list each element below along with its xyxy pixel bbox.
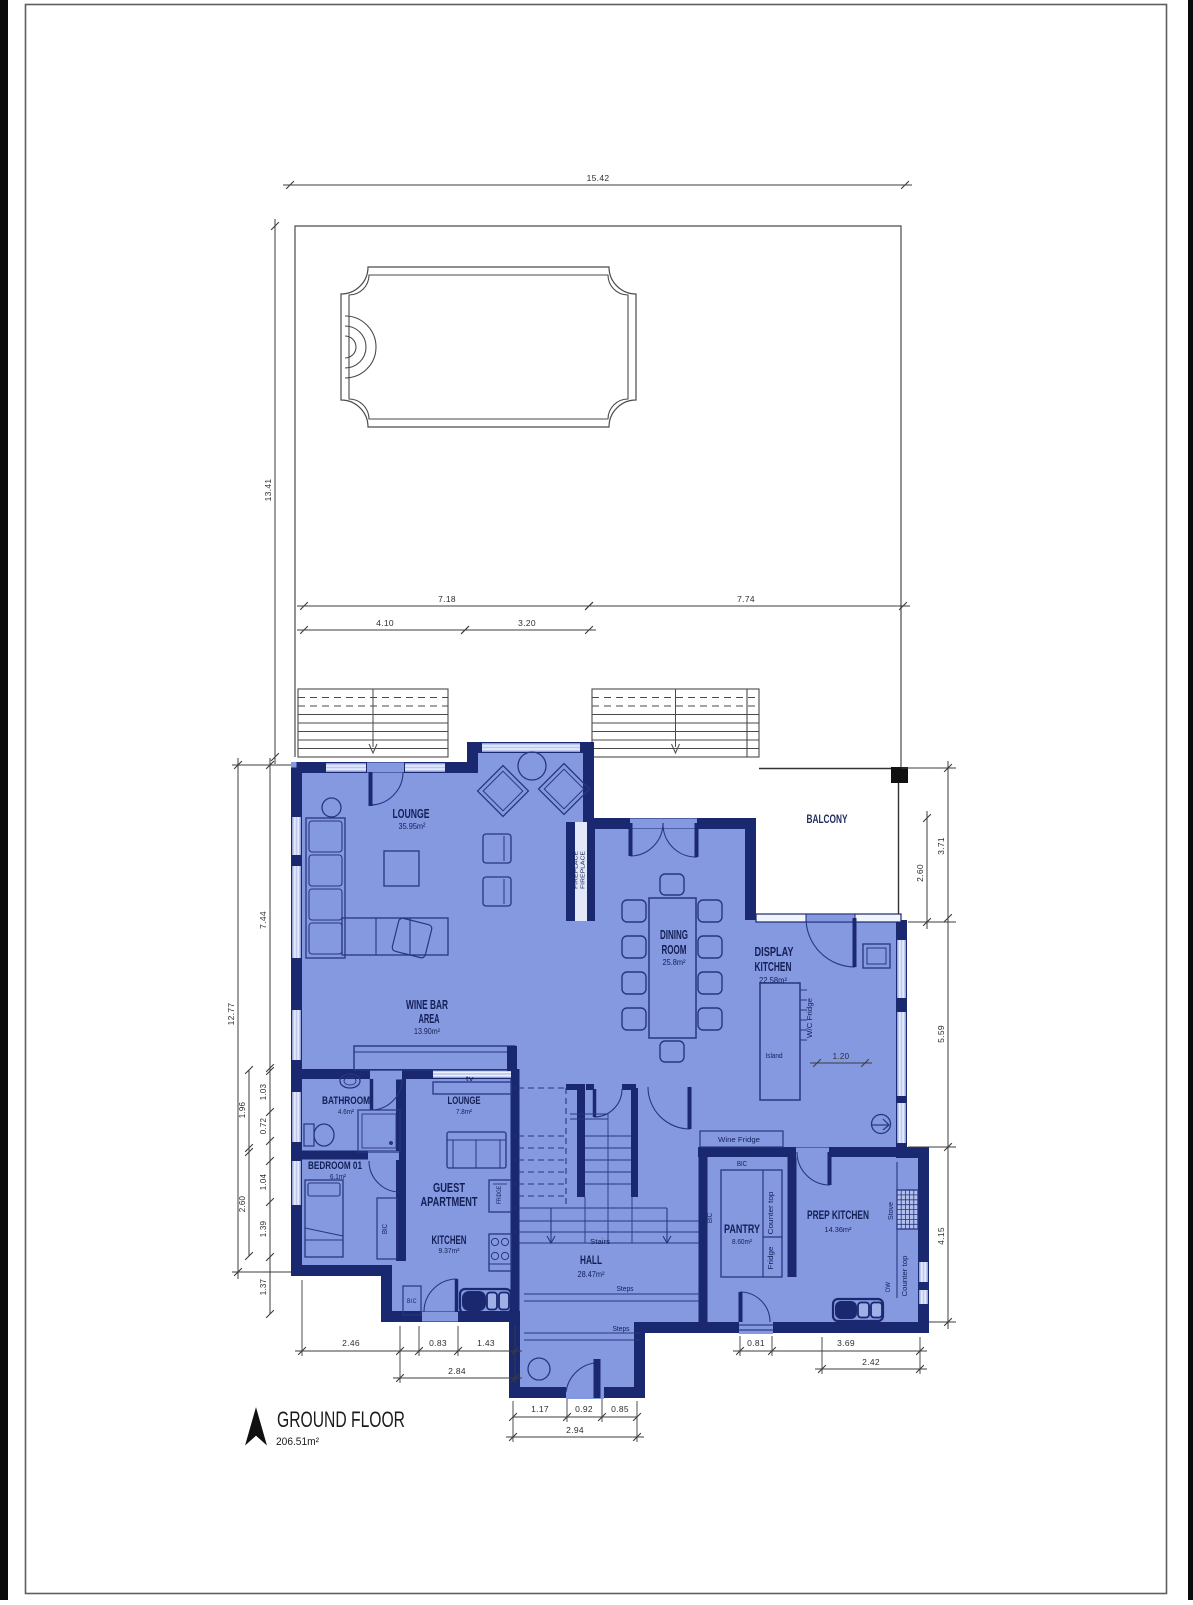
svg-text:3.71: 3.71 — [936, 837, 946, 855]
svg-text:2.42: 2.42 — [862, 1357, 880, 1367]
svg-text:Fridge: Fridge — [768, 1246, 775, 1269]
svg-text:APARTMENT: APARTMENT — [421, 1194, 478, 1209]
svg-text:2.46: 2.46 — [342, 1338, 360, 1348]
svg-text:0.81: 0.81 — [747, 1338, 765, 1348]
svg-text:DISPLAY: DISPLAY — [755, 944, 794, 959]
svg-text:7.18: 7.18 — [438, 594, 456, 604]
svg-text:PANTRY: PANTRY — [724, 1222, 760, 1236]
svg-text:2.60: 2.60 — [238, 1195, 247, 1212]
svg-text:BIC: BIC — [382, 1224, 389, 1234]
svg-text:LOUNGE: LOUNGE — [393, 806, 430, 821]
svg-text:DINING: DINING — [660, 927, 688, 942]
svg-text:FIREPLACE: FIREPLACE — [574, 851, 580, 889]
svg-text:2.84: 2.84 — [448, 1366, 466, 1376]
svg-text:7.74: 7.74 — [737, 594, 755, 604]
svg-text:25.8m²: 25.8m² — [663, 958, 686, 967]
svg-text:HALL: HALL — [580, 1253, 602, 1267]
svg-text:7.8m²: 7.8m² — [456, 1107, 472, 1116]
svg-text:4.15: 4.15 — [936, 1227, 946, 1245]
svg-text:0.83: 0.83 — [429, 1338, 447, 1348]
svg-text:1.17: 1.17 — [531, 1404, 549, 1414]
svg-text:0.72: 0.72 — [259, 1117, 268, 1134]
svg-text:206.51m²: 206.51m² — [276, 1436, 319, 1448]
svg-text:Wine Fridge: Wine Fridge — [718, 1135, 760, 1144]
svg-text:5.59: 5.59 — [936, 1025, 946, 1043]
svg-text:Island: Island — [766, 1051, 783, 1060]
svg-text:15.42: 15.42 — [587, 173, 610, 183]
svg-text:W/C Fridge: W/C Fridge — [807, 998, 814, 1038]
svg-text:Counter top: Counter top — [902, 1255, 909, 1296]
svg-text:13.90m²: 13.90m² — [414, 1027, 440, 1036]
svg-text:WINE BAR: WINE BAR — [406, 997, 448, 1012]
svg-text:4.6m²: 4.6m² — [338, 1107, 354, 1116]
svg-text:0.85: 0.85 — [611, 1404, 629, 1414]
svg-text:KITCHEN: KITCHEN — [755, 959, 792, 974]
svg-text:4.10: 4.10 — [376, 618, 394, 628]
svg-text:ROOM: ROOM — [662, 942, 687, 957]
svg-text:3.20: 3.20 — [518, 618, 536, 628]
svg-text:1.96: 1.96 — [238, 1101, 247, 1118]
svg-text:1.39: 1.39 — [259, 1220, 268, 1237]
svg-text:GUEST: GUEST — [433, 1180, 465, 1195]
svg-text:Stairs: Stairs — [590, 1237, 610, 1246]
svg-text:Steps: Steps — [617, 1284, 634, 1293]
svg-text:FRIDGE: FRIDGE — [496, 1186, 503, 1204]
svg-text:Steps: Steps — [613, 1324, 630, 1333]
svg-text:1.04: 1.04 — [259, 1173, 268, 1190]
svg-text:8.60m²: 8.60m² — [732, 1237, 752, 1246]
svg-text:KITCHEN: KITCHEN — [432, 1233, 467, 1247]
svg-text:BATHROOM: BATHROOM — [322, 1095, 370, 1107]
svg-text:BIC: BIC — [407, 1298, 417, 1305]
svg-text:28.47m²: 28.47m² — [578, 1270, 605, 1279]
svg-text:1.03: 1.03 — [259, 1083, 268, 1100]
svg-text:BALCONY: BALCONY — [807, 812, 848, 826]
svg-text:1.37: 1.37 — [259, 1278, 268, 1295]
svg-text:22.58m²: 22.58m² — [759, 976, 787, 985]
svg-text:2.60: 2.60 — [915, 864, 925, 882]
svg-text:BIC: BIC — [737, 1161, 747, 1168]
svg-text:14.36m²: 14.36m² — [825, 1225, 852, 1234]
svg-text:6.1m²: 6.1m² — [330, 1172, 346, 1181]
svg-text:12.77: 12.77 — [226, 1003, 236, 1026]
svg-text:AREA: AREA — [419, 1011, 440, 1026]
svg-text:9.37m²: 9.37m² — [439, 1246, 460, 1255]
svg-text:PREP KITCHEN: PREP KITCHEN — [807, 1208, 869, 1222]
svg-text:3.69: 3.69 — [837, 1338, 855, 1348]
svg-text:Counter top: Counter top — [768, 1191, 775, 1234]
svg-text:LOUNGE: LOUNGE — [448, 1095, 481, 1107]
svg-text:0.92: 0.92 — [575, 1404, 593, 1414]
svg-text:13.41: 13.41 — [263, 479, 273, 502]
svg-text:GROUND FLOOR: GROUND FLOOR — [277, 1407, 405, 1432]
svg-text:Stove: Stove — [888, 1202, 895, 1220]
svg-text:35.95m²: 35.95m² — [399, 821, 426, 831]
svg-text:1.43: 1.43 — [477, 1338, 495, 1348]
svg-text:BEDROOM 01: BEDROOM 01 — [308, 1160, 362, 1172]
svg-text:FIREPLACE: FIREPLACE — [581, 851, 587, 889]
svg-text:7.44: 7.44 — [258, 911, 268, 929]
svg-text:tv: tv — [466, 1076, 474, 1083]
svg-text:BIC: BIC — [707, 1213, 714, 1223]
svg-text:2.94: 2.94 — [566, 1425, 584, 1435]
svg-text:DW: DW — [885, 1281, 892, 1292]
svg-text:1.20: 1.20 — [833, 1052, 850, 1061]
